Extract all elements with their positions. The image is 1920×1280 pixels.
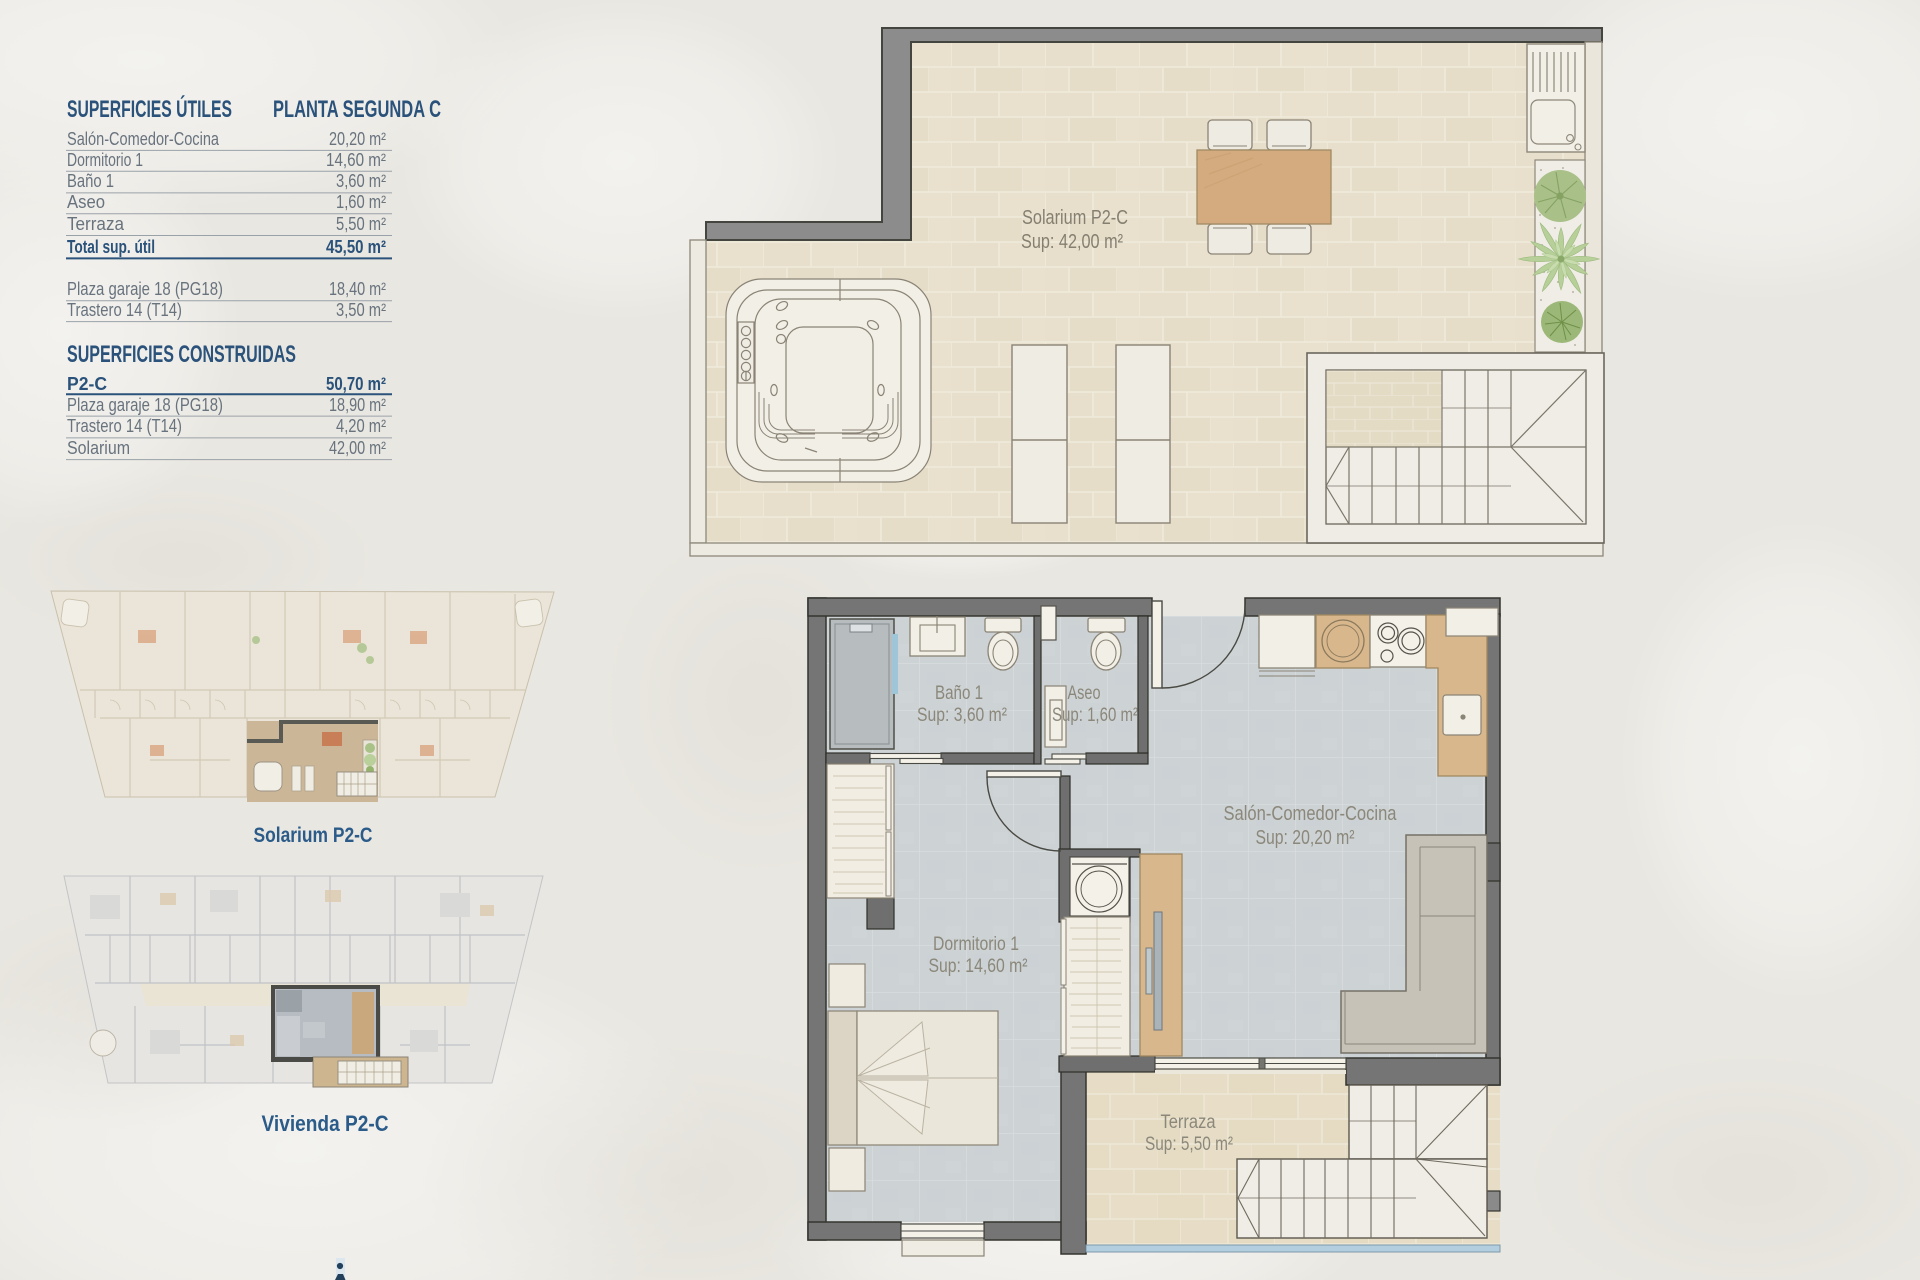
svg-text:45,50 m²: 45,50 m² <box>326 237 386 257</box>
svg-text:Sup: 14,60 m²: Sup: 14,60 m² <box>929 956 1028 977</box>
svg-text:PLANTA SEGUNDA C: PLANTA SEGUNDA C <box>273 96 441 123</box>
svg-text:Trastero 14 (T14): Trastero 14 (T14) <box>67 300 182 320</box>
svg-text:Plaza garaje 18 (PG18): Plaza garaje 18 (PG18) <box>67 279 223 299</box>
svg-text:P2-C: P2-C <box>67 374 107 394</box>
svg-text:Sup: 42,00 m²: Sup: 42,00 m² <box>1021 231 1123 253</box>
svg-text:Sup: 1,60 m²: Sup: 1,60 m² <box>1052 705 1138 726</box>
svg-text:Baño 1: Baño 1 <box>935 683 983 704</box>
svg-text:3,50 m²: 3,50 m² <box>336 300 386 320</box>
svg-text:14,60 m²: 14,60 m² <box>326 150 386 170</box>
svg-text:Aseo: Aseo <box>1068 683 1101 704</box>
svg-text:4,20 m²: 4,20 m² <box>336 416 386 436</box>
svg-text:Plaza garaje 18 (PG18): Plaza garaje 18 (PG18) <box>67 395 223 415</box>
svg-text:Trastero 14 (T14): Trastero 14 (T14) <box>67 416 182 436</box>
svg-text:Solarium P2-C: Solarium P2-C <box>254 824 373 847</box>
svg-text:Sup: 20,20 m²: Sup: 20,20 m² <box>1256 827 1355 849</box>
svg-text:50,70 m²: 50,70 m² <box>326 374 386 394</box>
svg-text:Sup: 5,50 m²: Sup: 5,50 m² <box>1145 1134 1233 1155</box>
svg-text:Salón-Comedor-Cocina: Salón-Comedor-Cocina <box>67 129 220 149</box>
svg-text:SUPERFICIES CONSTRUIDAS: SUPERFICIES CONSTRUIDAS <box>67 341 296 368</box>
svg-text:42,00 m²: 42,00 m² <box>329 438 386 458</box>
svg-text:18,90 m²: 18,90 m² <box>329 395 386 415</box>
svg-text:1,60 m²: 1,60 m² <box>336 192 386 212</box>
svg-text:Dormitorio 1: Dormitorio 1 <box>933 934 1019 955</box>
svg-text:20,20 m²: 20,20 m² <box>329 129 386 149</box>
svg-text:SUPERFICIES ÚTILES: SUPERFICIES ÚTILES <box>67 95 232 123</box>
svg-text:Solarium: Solarium <box>67 438 130 458</box>
svg-text:Vivienda P2-C: Vivienda P2-C <box>262 1111 389 1136</box>
svg-text:Terraza: Terraza <box>1161 1112 1216 1133</box>
svg-text:Aseo: Aseo <box>67 192 105 212</box>
svg-text:Terraza: Terraza <box>67 214 125 234</box>
svg-text:3,60 m²: 3,60 m² <box>336 171 386 191</box>
svg-text:5,50 m²: 5,50 m² <box>336 214 386 234</box>
svg-text:Dormitorio 1: Dormitorio 1 <box>67 150 143 170</box>
svg-text:18,40 m²: 18,40 m² <box>329 279 386 299</box>
svg-text:Baño 1: Baño 1 <box>67 171 114 191</box>
svg-text:Solarium P2-C: Solarium P2-C <box>1022 207 1128 229</box>
svg-text:Total sup. útil: Total sup. útil <box>67 237 155 257</box>
svg-text:Salón-Comedor-Cocina: Salón-Comedor-Cocina <box>1224 803 1398 825</box>
svg-text:Sup: 3,60 m²: Sup: 3,60 m² <box>917 705 1007 726</box>
